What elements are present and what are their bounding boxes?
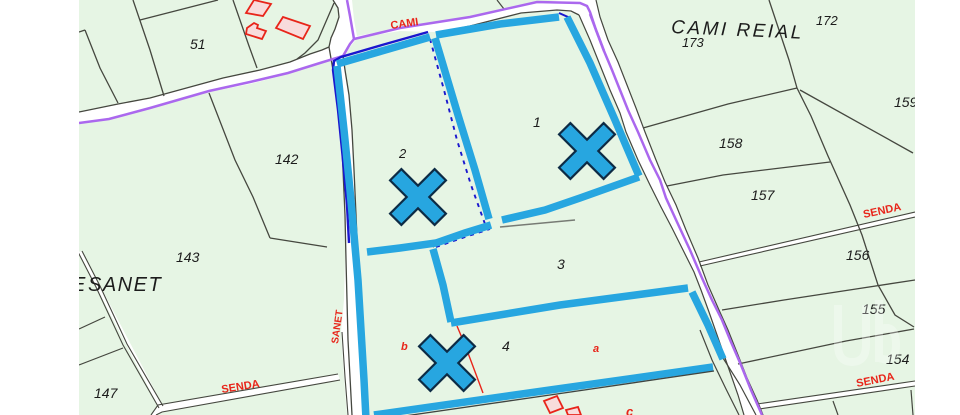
- svg-text:b: b: [401, 341, 408, 353]
- svg-text:159: 159: [894, 94, 918, 110]
- svg-text:172: 172: [816, 13, 838, 28]
- svg-text:SANET: SANET: [88, 274, 162, 296]
- svg-text:147: 147: [94, 385, 119, 401]
- svg-text:173: 173: [682, 35, 704, 50]
- svg-text:143: 143: [176, 249, 200, 265]
- svg-text:a: a: [593, 343, 599, 355]
- svg-text:156: 156: [846, 247, 870, 263]
- svg-text:E: E: [72, 274, 86, 296]
- svg-text:2: 2: [398, 146, 407, 161]
- svg-text:142: 142: [275, 151, 299, 167]
- svg-text:51: 51: [190, 36, 206, 52]
- svg-text:3: 3: [557, 256, 565, 272]
- svg-text:c: c: [626, 404, 634, 415]
- svg-text:158: 158: [719, 135, 743, 151]
- svg-text:1: 1: [533, 114, 541, 130]
- svg-text:157: 157: [751, 187, 776, 203]
- svg-text:4: 4: [502, 338, 510, 354]
